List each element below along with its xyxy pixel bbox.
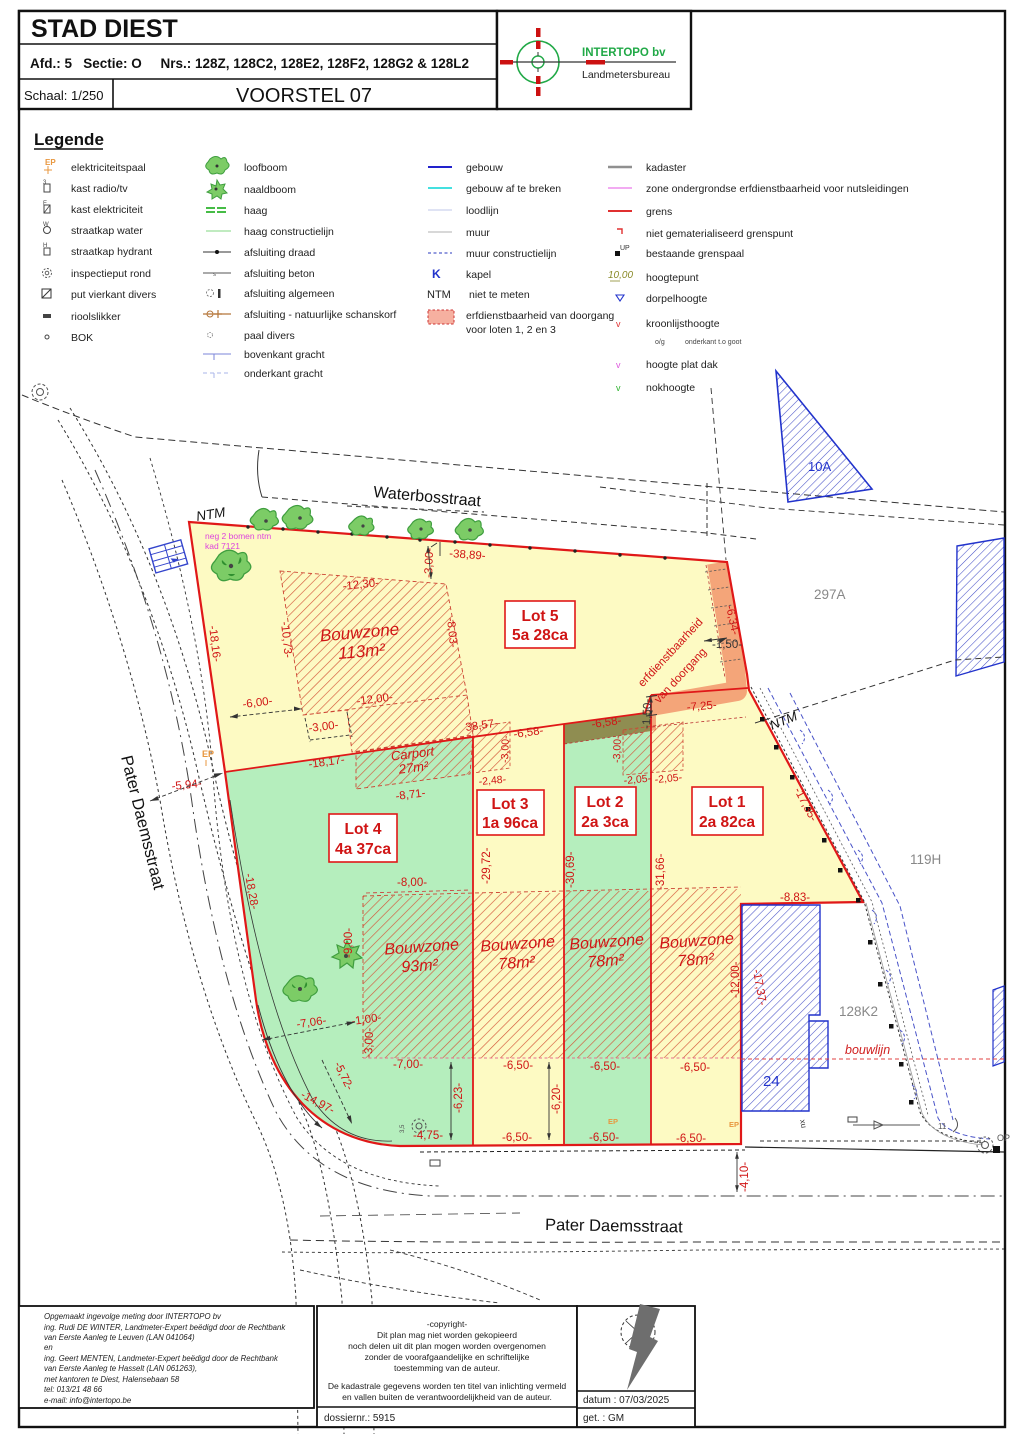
svg-text:2a 82ca: 2a 82ca: [699, 814, 755, 831]
svg-text:93m²: 93m²: [401, 957, 439, 977]
svg-text:en vallen buiten de verantwoor: en vallen buiten de verantwoordelijkheid…: [342, 1392, 552, 1402]
svg-text:grens: grens: [646, 206, 672, 218]
svg-text:v: v: [616, 319, 621, 329]
svg-text:11: 11: [938, 1122, 947, 1131]
svg-text:dossiernr.: 5915: dossiernr.: 5915: [324, 1413, 396, 1424]
svg-text:-12,00-: -12,00-: [730, 961, 742, 998]
svg-text:nokhoogte: nokhoogte: [646, 382, 695, 394]
svg-text:VOORSTEL 07: VOORSTEL 07: [236, 85, 372, 107]
svg-text:bovenkant gracht: bovenkant gracht: [244, 349, 325, 361]
svg-text:loodlijn: loodlijn: [466, 205, 499, 217]
svg-text:straatkap water: straatkap water: [71, 225, 143, 237]
svg-text:-7,00-: -7,00-: [393, 1059, 423, 1071]
svg-text:EP: EP: [608, 1117, 618, 1126]
svg-text:met kantoren te Diest, Halens: met kantoren te Diest, Halensebaan 58: [44, 1375, 180, 1384]
svg-text:e-mail: info@intertopo.be: e-mail: info@intertopo.be: [44, 1396, 132, 1405]
svg-text:kapel: kapel: [466, 269, 491, 281]
svg-text:Lot 2: Lot 2: [586, 794, 623, 811]
svg-text:-1,50-: -1,50-: [712, 639, 742, 651]
svg-text:kadaster: kadaster: [646, 162, 687, 174]
svg-text:zone ondergrondse erfdienstbaa: zone ondergrondse erfdienstbaarheid voor…: [646, 183, 909, 195]
svg-text:van Eerste Aanleg te Leuven (L: van Eerste Aanleg te Leuven (LAN 041064): [44, 1333, 195, 1342]
svg-text:Landmetersbureau: Landmetersbureau: [582, 69, 670, 81]
svg-text:loofboom: loofboom: [244, 162, 287, 174]
svg-text:-9,00-: -9,00-: [343, 928, 355, 958]
svg-text:s: s: [213, 272, 216, 278]
svg-text:H: H: [43, 243, 47, 249]
svg-text:naaldboom: naaldboom: [244, 184, 296, 196]
svg-text:-38,89-: -38,89-: [449, 548, 486, 563]
svg-text:bestaande grenspaal: bestaande grenspaal: [646, 248, 744, 260]
svg-text:muur constructielijn: muur constructielijn: [466, 248, 557, 260]
svg-text:Pater Daemsstraat: Pater Daemsstraat: [545, 1216, 683, 1236]
svg-text:-3,00-: -3,00-: [611, 735, 624, 763]
svg-text:toestemming van de auteur.: toestemming van de auteur.: [394, 1363, 500, 1373]
svg-text:o/g: o/g: [655, 339, 665, 346]
svg-text:UP: UP: [620, 245, 630, 252]
svg-text:noch delen uit dit plan mogen: noch delen uit dit plan mogen worden ove…: [348, 1341, 546, 1351]
svg-text:-8,83-: -8,83-: [780, 892, 810, 904]
svg-text:zonder de voorafgaandelijke en: zonder de voorafgaandelijke en schriftel…: [365, 1352, 530, 1362]
svg-text:van Eerste Aanleg te Hasselt (: van Eerste Aanleg te Hasselt (LAN 061263…: [44, 1364, 197, 1373]
svg-text:-6,50-: -6,50-: [676, 1133, 706, 1145]
svg-text:dorpelhoogte: dorpelhoogte: [646, 293, 707, 305]
svg-text:K: K: [432, 267, 441, 281]
svg-text:Lot 4: Lot 4: [344, 821, 381, 838]
svg-text:-6,50-: -6,50-: [589, 1132, 619, 1144]
svg-text:inspectieput rond: inspectieput rond: [71, 268, 151, 280]
svg-text:5a 28ca: 5a 28ca: [512, 627, 568, 644]
svg-text:afsluiting beton: afsluiting beton: [244, 268, 315, 280]
svg-text:datum : 07/03/2025: datum : 07/03/2025: [583, 1395, 670, 1406]
svg-text:hoogte plat dak: hoogte plat dak: [646, 359, 719, 371]
svg-text:-2,05-: -2,05-: [623, 773, 652, 787]
svg-text:elektriciteitspaal: elektriciteitspaal: [71, 162, 146, 174]
svg-text:-29,72-: -29,72-: [481, 847, 493, 884]
svg-text:Afd.: 5 Sectie: O Nrs.:: Afd.: 5 Sectie: O Nrs.: 128Z, 128C2, 128…: [30, 56, 469, 71]
svg-text:kast elektriciteit: kast elektriciteit: [71, 204, 143, 216]
svg-text:-6,50-: -6,50-: [502, 1132, 532, 1144]
svg-text:-6,50-: -6,50-: [590, 1061, 620, 1073]
svg-text:OP: OP: [997, 1133, 1010, 1143]
svg-text:paal divers: paal divers: [244, 330, 295, 342]
svg-text:NTM: NTM: [427, 289, 451, 301]
svg-text:78m²: 78m²: [677, 951, 715, 971]
svg-text:3,5: 3,5: [400, 1124, 406, 1133]
svg-text:-copyright-: -copyright-: [427, 1319, 468, 1329]
svg-text:2a 3ca: 2a 3ca: [581, 814, 629, 831]
svg-text:Schaal: 1/250: Schaal: 1/250: [24, 88, 104, 103]
svg-text:get. : GM: get. : GM: [583, 1413, 624, 1424]
svg-text:De kadastrale gegevens worden: De kadastrale gegevens worden ten titel …: [328, 1381, 567, 1391]
svg-text:bouwlijn: bouwlijn: [845, 1043, 890, 1057]
svg-text:STAD DIEST: STAD DIEST: [31, 15, 178, 43]
svg-text:E: E: [43, 201, 47, 207]
svg-text:10,00: 10,00: [608, 270, 633, 281]
svg-text:ing. Geert MENTEN, Landmeter-E: ing. Geert MENTEN, Landmeter-Expert beëd…: [44, 1354, 279, 1363]
svg-text:kast radio/tv: kast radio/tv: [71, 183, 128, 195]
svg-text:INTERTOPO bv: INTERTOPO bv: [582, 47, 666, 59]
svg-text:onderkant t.o goot: onderkant t.o goot: [685, 339, 741, 346]
svg-text:1a 96ca: 1a 96ca: [482, 815, 538, 832]
svg-text:haag constructielijn: haag constructielijn: [244, 226, 334, 238]
svg-text:kad 7121: kad 7121: [205, 541, 240, 551]
svg-text:onderkant gracht: onderkant gracht: [244, 368, 323, 380]
svg-text:gebouw af te breken: gebouw af te breken: [466, 183, 561, 195]
svg-text:-6,50-: -6,50-: [503, 1060, 533, 1072]
svg-text:Opgemaakt ingevolge meting doo: Opgemaakt ingevolge meting door INTERTOP…: [44, 1312, 222, 1321]
svg-text:xu: xu: [798, 1119, 808, 1129]
svg-text:en: en: [44, 1343, 53, 1352]
svg-text:niet te meten: niet te meten: [469, 289, 530, 301]
svg-text:Lot 5: Lot 5: [521, 608, 558, 625]
svg-text:297A: 297A: [814, 587, 846, 602]
svg-text:-4,75-: -4,75-: [413, 1130, 443, 1142]
svg-text:-1,50-: -1,50-: [641, 698, 654, 729]
svg-text:10A: 10A: [808, 459, 831, 474]
svg-text:24: 24: [763, 1073, 780, 1090]
svg-text:hoogtepunt: hoogtepunt: [646, 272, 699, 284]
svg-text:niet gematerialiseerd grenspun: niet gematerialiseerd grenspunt: [646, 228, 793, 240]
svg-text:4a 37ca: 4a 37ca: [335, 841, 391, 858]
svg-text:-6,23-: -6,23-: [453, 1083, 465, 1113]
svg-text:-31,66-: -31,66-: [655, 853, 667, 890]
svg-text:78m²: 78m²: [587, 952, 625, 972]
svg-text:ing. Rudi DE WINTER, Landmeter: ing. Rudi DE WINTER, Landmeter-Expert be…: [44, 1323, 286, 1332]
svg-text:put vierkant divers: put vierkant divers: [71, 289, 156, 301]
svg-text:Dit plan mag niet worden gekop: Dit plan mag niet worden gekopieerd: [377, 1330, 517, 1340]
svg-text:-3,00-: -3,00-: [499, 735, 512, 763]
svg-text:78m²: 78m²: [498, 954, 536, 974]
svg-text:neg 2 bomen ntm: neg 2 bomen ntm: [205, 531, 271, 541]
svg-text:-8,00-: -8,00-: [397, 877, 427, 889]
svg-text:haag: haag: [244, 205, 268, 217]
svg-text:v: v: [616, 383, 621, 393]
svg-text:119H: 119H: [910, 852, 941, 867]
svg-text:Lot 3: Lot 3: [491, 796, 528, 813]
svg-text:W: W: [43, 222, 49, 228]
svg-text:straatkap hydrant: straatkap hydrant: [71, 246, 152, 258]
svg-text:gebouw: gebouw: [466, 162, 503, 174]
svg-text:tel: 013/21 48 66: tel: 013/21 48 66: [44, 1385, 103, 1394]
svg-text:afsluiting algemeen: afsluiting algemeen: [244, 288, 335, 300]
svg-text:erfdienstbaarheid van doorgang: erfdienstbaarheid van doorgang: [466, 310, 614, 322]
svg-text:rioolslikker: rioolslikker: [71, 311, 121, 323]
svg-text:-3,00-: -3,00-: [363, 1027, 376, 1058]
svg-text:-2,05-: -2,05-: [654, 772, 683, 786]
svg-text:BOK: BOK: [71, 332, 93, 344]
svg-text:Legende: Legende: [34, 130, 104, 149]
svg-text:-30,69-: -30,69-: [565, 851, 577, 888]
svg-text:-6,20-: -6,20-: [551, 1084, 563, 1114]
svg-text:EP: EP: [729, 1120, 739, 1129]
svg-text:-4,10-: -4,10-: [739, 1162, 751, 1192]
svg-text:kroonlijsthoogte: kroonlijsthoogte: [646, 318, 720, 330]
svg-text:muur: muur: [466, 227, 490, 239]
svg-text:EP: EP: [45, 158, 56, 167]
svg-text:afsluiting draad: afsluiting draad: [244, 247, 315, 259]
svg-text:128K2: 128K2: [839, 1004, 878, 1019]
svg-text:-6,50-: -6,50-: [680, 1062, 710, 1074]
svg-text:Lot 1: Lot 1: [708, 794, 745, 811]
svg-text:voor loten 1, 2 en 3: voor loten 1, 2 en 3: [466, 324, 556, 336]
svg-text:afsluiting - natuurlijke schan: afsluiting - natuurlijke schanskorf: [244, 309, 396, 321]
svg-text:-2,48-: -2,48-: [478, 774, 507, 788]
svg-text:v: v: [616, 360, 621, 370]
svg-text:EP: EP: [202, 749, 214, 759]
